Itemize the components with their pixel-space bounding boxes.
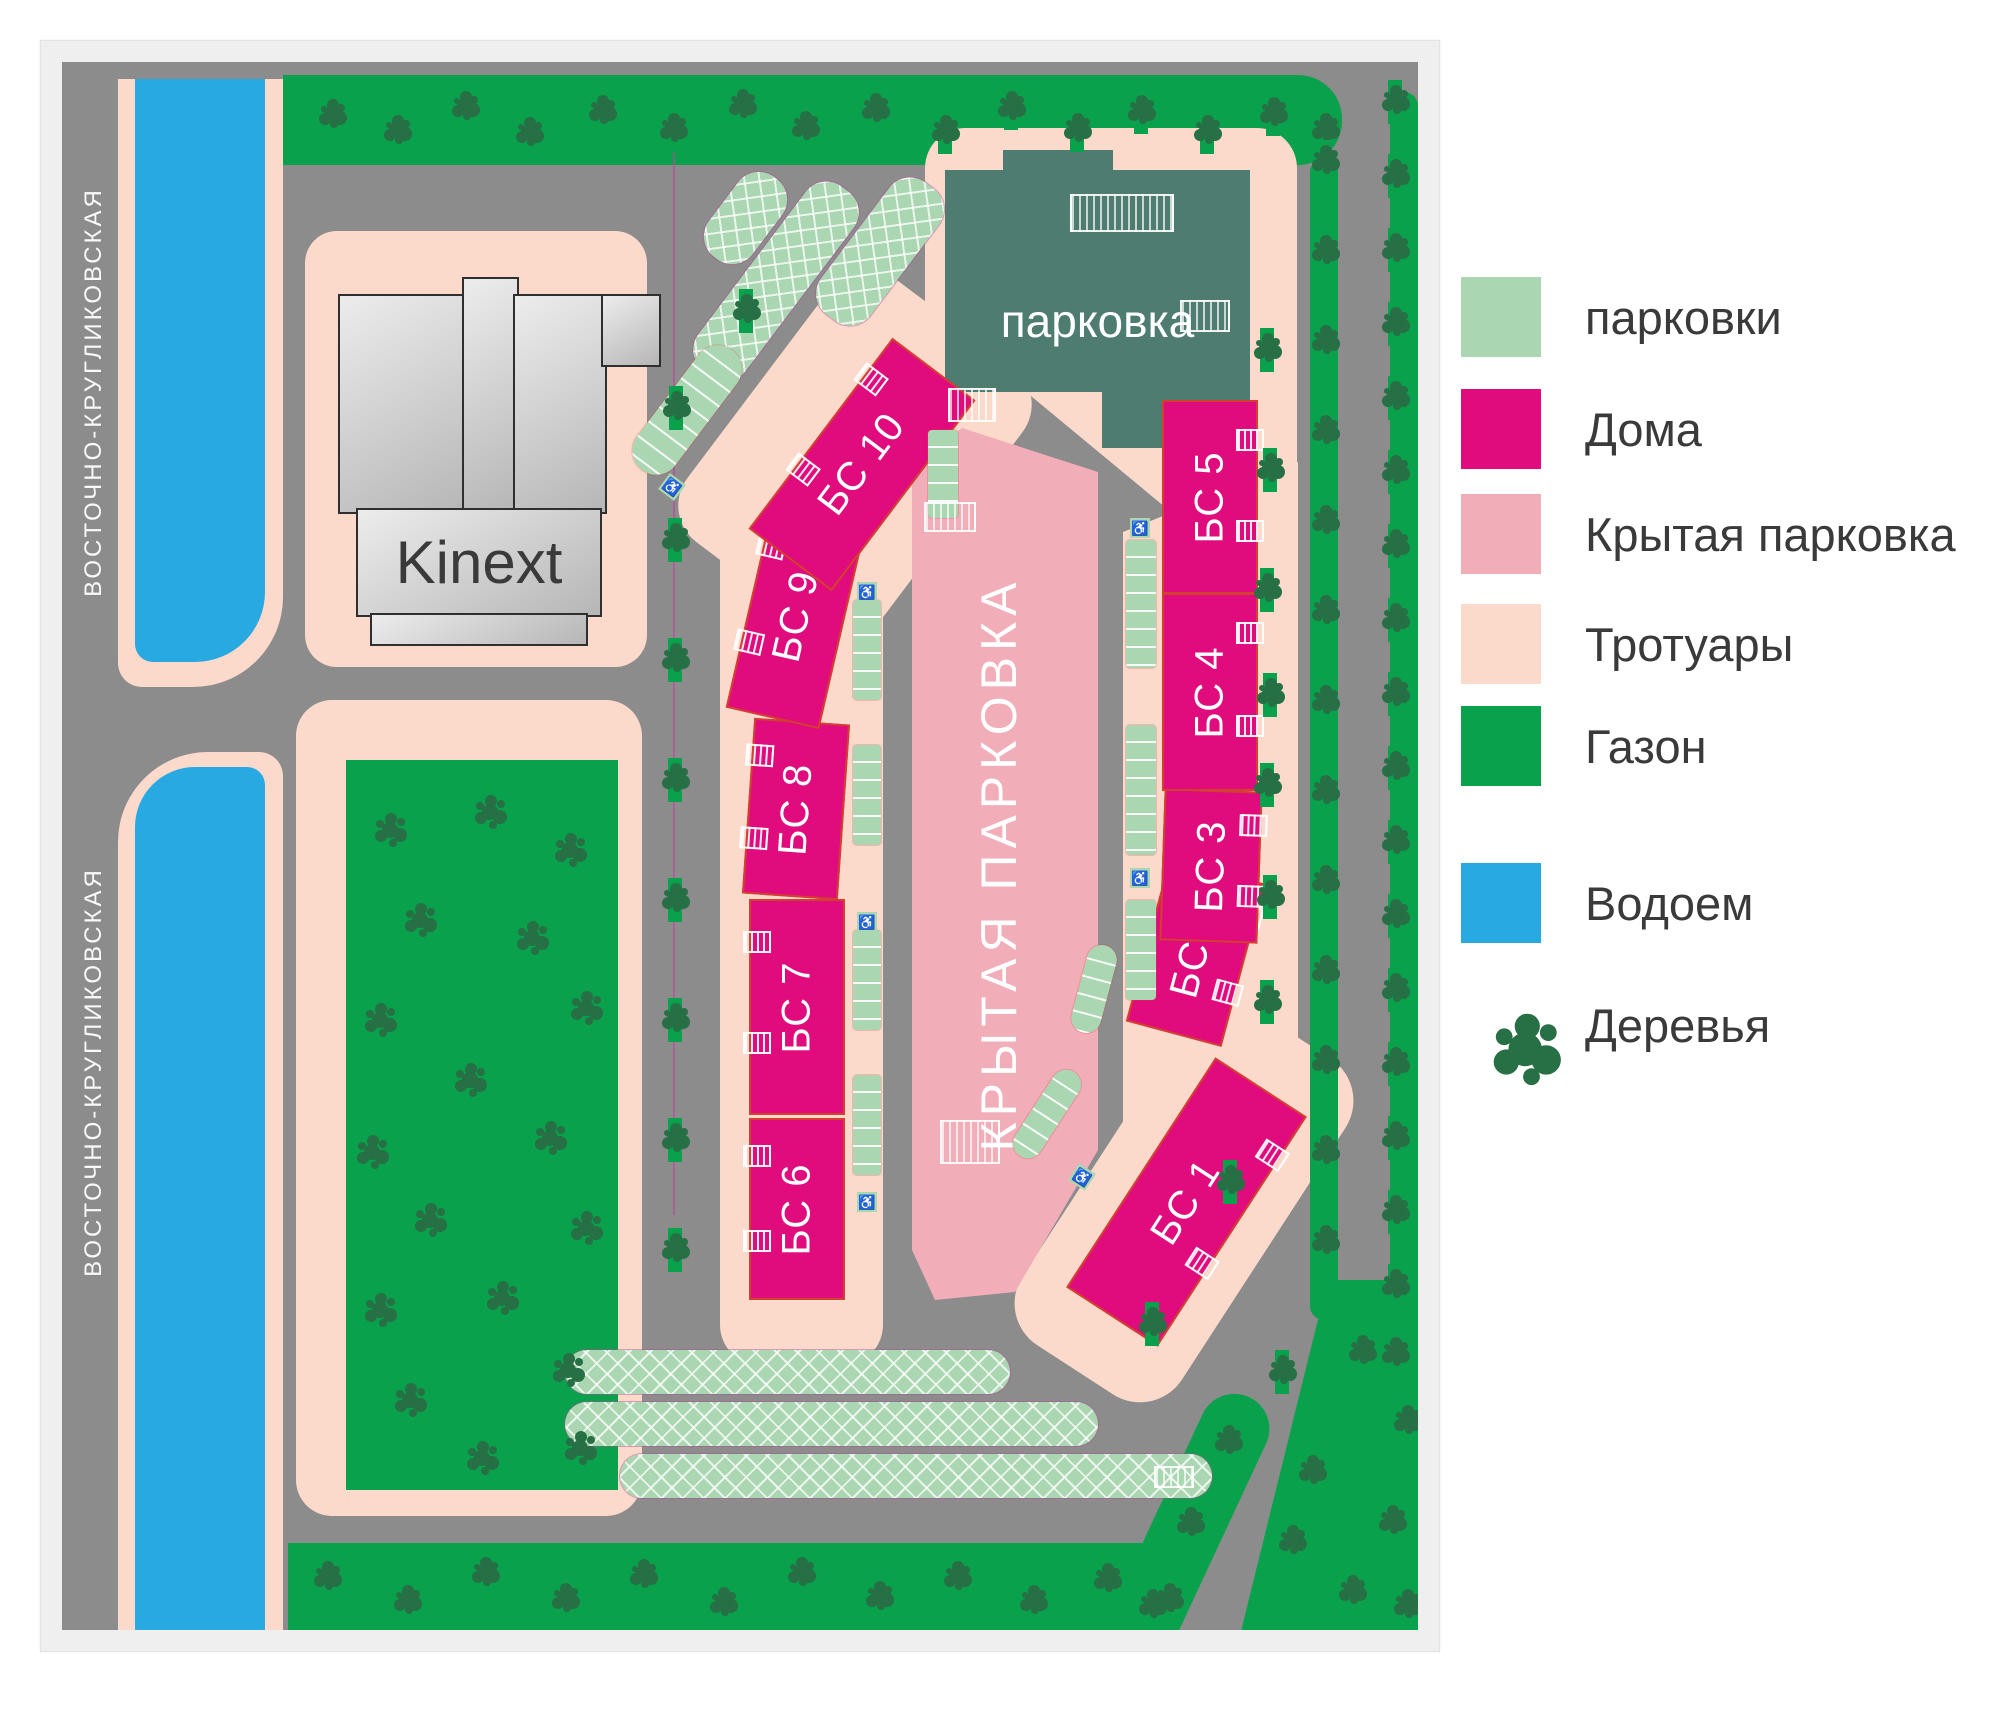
tree-crown xyxy=(1387,610,1403,626)
tree-icon xyxy=(1380,300,1410,348)
legend-item-parking: парковки xyxy=(1461,277,1991,357)
tree-crown xyxy=(1344,1582,1360,1598)
tree-icon xyxy=(1175,1500,1205,1548)
shrub-icon xyxy=(372,1302,388,1318)
tree-icon xyxy=(996,84,1026,132)
entrance-icon xyxy=(1255,1138,1290,1172)
entrance-icon xyxy=(785,452,821,486)
tree-crown xyxy=(1317,872,1333,888)
tree-icon xyxy=(1310,408,1340,456)
tree-icon xyxy=(1380,152,1410,200)
tree-crown xyxy=(937,122,953,138)
tree-icon xyxy=(470,1550,500,1598)
parking-strip xyxy=(565,1402,1098,1446)
legend-swatch-covered-parking xyxy=(1461,494,1541,574)
building-detail-outline xyxy=(1180,300,1230,332)
tree-icon xyxy=(1255,671,1285,719)
tree-crown xyxy=(1387,92,1403,108)
tree-crown xyxy=(1387,758,1403,774)
building-detail-outline xyxy=(1154,1466,1194,1488)
tree-crown xyxy=(557,1590,573,1606)
legend-label-sidewalks: Тротуары xyxy=(1585,604,1793,684)
tree-icon xyxy=(1392,1398,1418,1446)
tree-crown xyxy=(324,106,340,122)
shrub-icon xyxy=(422,1212,438,1228)
tree-crown xyxy=(1317,692,1333,708)
tree-crown xyxy=(1182,1514,1198,1530)
tree-crown xyxy=(1387,388,1403,404)
entrance-icon xyxy=(1236,520,1264,542)
wheelchair-icon: ♿ xyxy=(857,582,877,602)
tree-icon xyxy=(790,104,820,152)
tree-crown xyxy=(667,890,683,906)
shrub-icon xyxy=(578,1220,594,1236)
parking-strip xyxy=(620,1454,1212,1498)
tree-icon xyxy=(860,86,890,134)
building-label-bs-5: БС 5 xyxy=(1188,451,1233,543)
shrub-icon xyxy=(494,1290,510,1306)
tree-crown xyxy=(1387,906,1403,922)
tree-crown xyxy=(1399,1412,1415,1428)
tree-icon xyxy=(1310,588,1340,636)
tree-crown xyxy=(1003,98,1019,114)
tree-crown xyxy=(1220,1432,1236,1448)
tree-icon xyxy=(1392,1582,1418,1630)
tree-icon xyxy=(660,876,690,924)
tree-icon xyxy=(1215,1158,1245,1206)
parking-strip xyxy=(853,600,881,700)
building-label-bs-6: БС 6 xyxy=(775,1163,820,1255)
building-label-bs-10: БС 10 xyxy=(809,405,914,524)
tree-crown xyxy=(1387,1128,1403,1144)
legend-item-covered-parking: Крытая парковка xyxy=(1461,494,1991,574)
tree-icon xyxy=(1267,1348,1297,1396)
legend-label-trees: Деревья xyxy=(1585,985,1770,1065)
tree-crown xyxy=(1317,1052,1333,1068)
legend-label-covered-parking: Крытая парковка xyxy=(1585,494,1956,574)
tree-icon xyxy=(660,1116,690,1164)
tree-crown xyxy=(715,1594,731,1610)
legend-item-trees: Деревья xyxy=(1461,985,1991,1065)
entrance-icon xyxy=(743,931,771,953)
legend-item-lawn: Газон xyxy=(1461,706,1991,786)
tree-crown xyxy=(1317,1232,1333,1248)
tree-crown xyxy=(1387,980,1403,996)
legend-item-water: Водоем xyxy=(1461,863,1991,943)
tree-crown xyxy=(793,1564,809,1580)
building-detail-outline xyxy=(948,388,996,422)
tree-crown xyxy=(667,770,683,786)
shrub-icon xyxy=(402,1392,418,1408)
tree-crown xyxy=(1317,782,1333,798)
tree-crown xyxy=(1317,512,1333,528)
tree-icon xyxy=(1310,1218,1340,1266)
tree-icon xyxy=(1380,596,1410,644)
shrub-icon xyxy=(578,1000,594,1016)
tree-crown xyxy=(738,301,754,317)
tree-crown xyxy=(1259,340,1275,356)
legend-label-water: Водоем xyxy=(1585,863,1753,943)
tree-crown xyxy=(1387,684,1403,700)
tree-crown xyxy=(1222,1172,1238,1188)
tree-crown xyxy=(1387,1344,1403,1360)
tree-crown xyxy=(1025,1592,1041,1608)
tree-crown xyxy=(1317,120,1333,136)
building-bs-6: БС 6 xyxy=(749,1118,845,1300)
shrub-icon xyxy=(372,1012,388,1028)
tree-crown xyxy=(635,1566,651,1582)
tree-icon xyxy=(1310,138,1340,186)
generated-layer: БС 1БС 2БС 3БС 4БС 5БС 6БС 7БС 8БС 9БС 1… xyxy=(62,62,1418,1630)
tree-crown xyxy=(1284,1532,1300,1548)
tree-icon xyxy=(1380,1262,1410,1310)
tree-icon xyxy=(1137,1300,1167,1348)
tree-icon xyxy=(708,1580,738,1628)
tree-icon xyxy=(1380,226,1410,274)
entrance-icon xyxy=(743,1032,771,1054)
tree-crown xyxy=(667,650,683,666)
entrance-icon xyxy=(1184,1247,1219,1281)
tree-icon xyxy=(942,1554,972,1602)
shrub-icon xyxy=(572,1440,588,1456)
tree-icon xyxy=(727,82,757,130)
legend-item-houses: Дома xyxy=(1461,389,1991,469)
tree-crown xyxy=(949,1568,965,1584)
tree-crown xyxy=(389,122,405,138)
shrub-icon xyxy=(474,1450,490,1466)
tree-icon xyxy=(550,1576,580,1624)
tree-icon xyxy=(660,996,690,1044)
tree-crown xyxy=(1317,332,1333,348)
tree-crown xyxy=(1317,242,1333,258)
tree-crown xyxy=(1317,422,1333,438)
tree-crown xyxy=(667,1130,683,1146)
tree-icon xyxy=(450,84,480,132)
tree-crown xyxy=(399,1592,415,1608)
tree-icon xyxy=(1380,1330,1410,1378)
tree-crown xyxy=(1387,462,1403,478)
tree-icon xyxy=(1258,90,1288,138)
entrance-icon xyxy=(1211,979,1244,1007)
building-label-bs-7: БС 7 xyxy=(775,961,820,1053)
tree-icon xyxy=(1062,106,1092,154)
tree-icon xyxy=(1310,498,1340,546)
parking-strip xyxy=(1068,942,1120,1037)
tree-crown xyxy=(667,1010,683,1026)
tree-icon xyxy=(1126,88,1156,136)
tree-crown xyxy=(665,120,681,136)
tree-icon xyxy=(1380,744,1410,792)
entrance-icon xyxy=(853,362,889,396)
shrub-icon xyxy=(542,1130,558,1146)
tree-crown xyxy=(319,1568,335,1584)
tree-icon xyxy=(1310,1128,1340,1176)
tree-icon xyxy=(1310,768,1340,816)
tree-crown xyxy=(1387,1202,1403,1218)
building-bs-3: БС 3 xyxy=(1159,788,1262,943)
tree-icon xyxy=(1252,326,1282,374)
tree-crown xyxy=(477,1564,493,1580)
entrance-icon xyxy=(745,743,774,767)
tree-icon xyxy=(660,756,690,804)
tree-icon xyxy=(786,1550,816,1598)
tree-crown xyxy=(1144,1314,1160,1330)
tree-crown xyxy=(1262,460,1278,476)
parking-strip xyxy=(1126,725,1156,855)
tree-icon xyxy=(392,1578,422,1626)
tree-crown xyxy=(1317,602,1333,618)
shrub-icon xyxy=(382,822,398,838)
building-bs-7: БС 7 xyxy=(749,899,845,1115)
tree-icon xyxy=(1252,978,1282,1026)
building-label-bs-8: БС 8 xyxy=(770,762,821,857)
tree-icon xyxy=(1277,1518,1307,1566)
tree-icon xyxy=(1380,1040,1410,1088)
site-plan-panel: ВОСТОЧНО-КРУГЛИКОВСКАЯ ВОСТОЧНО-КРУГЛИКО… xyxy=(40,40,1440,1652)
building-label-bs-4: БС 4 xyxy=(1188,646,1233,738)
tree-crown xyxy=(1259,992,1275,1008)
tree-crown xyxy=(1304,1462,1320,1478)
tree-crown xyxy=(1387,832,1403,848)
tree-crown xyxy=(667,530,683,546)
tree-icon xyxy=(1380,374,1410,422)
tree-crown xyxy=(668,398,684,414)
tree-icon xyxy=(1380,522,1410,570)
tree-icon xyxy=(1310,1038,1340,1086)
tree-icon xyxy=(660,516,690,564)
shrub-icon xyxy=(560,1362,576,1378)
tree-crown xyxy=(1387,166,1403,182)
legend-swatch-sidewalks xyxy=(1461,604,1541,684)
tree-icon xyxy=(1252,566,1282,614)
tree-icon xyxy=(382,108,412,156)
legend-item-sidewalks: Тротуары xyxy=(1461,604,1991,684)
tree-icon xyxy=(1380,892,1410,940)
tree-crown xyxy=(867,100,883,116)
tree-icon xyxy=(1380,670,1410,718)
shrub-icon xyxy=(524,930,540,946)
wheelchair-icon: ♿ xyxy=(1068,1163,1096,1191)
tree-icon xyxy=(1310,858,1340,906)
building-detail-outline xyxy=(1070,194,1174,232)
tree-icon xyxy=(514,110,544,158)
legend-label-parking: парковки xyxy=(1585,277,1782,357)
tree-icon xyxy=(1310,678,1340,726)
tree-crown xyxy=(521,124,537,140)
tree-icon xyxy=(1347,1328,1377,1376)
tree-icon xyxy=(864,1574,894,1622)
tree-icon xyxy=(1337,1568,1367,1616)
tree-icon xyxy=(1380,448,1410,496)
entrance-icon xyxy=(733,628,765,656)
tree-icon xyxy=(1255,446,1285,494)
tree-icon xyxy=(1380,1188,1410,1236)
tree-icon xyxy=(1380,1114,1410,1162)
shrub-icon xyxy=(562,842,578,858)
parking-strip xyxy=(853,745,881,845)
tree-crown xyxy=(1199,122,1215,138)
tree-crown xyxy=(1354,1342,1370,1358)
tree-icon xyxy=(587,88,617,136)
tree-crown xyxy=(871,1588,887,1604)
tree-crown xyxy=(1099,1570,1115,1586)
tree-crown xyxy=(1399,1596,1415,1612)
legend: парковкиДомаКрытая парковкаТротуарыГазон… xyxy=(1461,0,1991,1729)
wheelchair-icon: ♿ xyxy=(658,473,686,501)
site-plan-map: ВОСТОЧНО-КРУГЛИКОВСКАЯ ВОСТОЧНО-КРУГЛИКО… xyxy=(62,62,1418,1630)
site-plan-page: ВОСТОЧНО-КРУГЛИКОВСКАЯ ВОСТОЧНО-КРУГЛИКО… xyxy=(0,0,2000,1729)
tree-crown xyxy=(1265,104,1281,120)
shrub-icon xyxy=(462,1072,478,1088)
tree-icon xyxy=(628,1552,658,1600)
tree-crown xyxy=(667,1240,683,1256)
tree-icon xyxy=(731,287,761,335)
tree-crown xyxy=(1317,962,1333,978)
entrance-icon xyxy=(1239,814,1268,837)
tree-crown xyxy=(1317,152,1333,168)
tree-crown xyxy=(1069,120,1085,136)
tree-icon xyxy=(1380,818,1410,866)
tree-crown xyxy=(1144,1596,1160,1612)
tree-crown xyxy=(797,118,813,134)
tree-icon xyxy=(1213,1418,1243,1466)
tree-icon xyxy=(1377,1498,1407,1546)
tree-crown xyxy=(1508,1033,1542,1067)
parking-strip xyxy=(1007,1064,1087,1164)
entrance-icon xyxy=(743,1145,771,1167)
parking-strip xyxy=(853,930,881,1030)
tree-icon xyxy=(1310,228,1340,276)
tree-crown xyxy=(734,96,750,112)
shrub-icon xyxy=(412,912,428,928)
tree-crown xyxy=(1133,102,1149,118)
tree-icon xyxy=(660,1226,690,1274)
tree-crown xyxy=(1259,580,1275,596)
tree-crown xyxy=(594,102,610,118)
tree-icon xyxy=(1192,108,1222,156)
tree-icon xyxy=(1018,1578,1048,1626)
building-bs-5: БС 5 xyxy=(1162,400,1258,594)
tree-crown xyxy=(1387,240,1403,256)
building-bs-8: БС 8 xyxy=(742,718,850,900)
tree-icon xyxy=(312,1554,342,1602)
tree-icon xyxy=(1380,78,1410,126)
legend-swatch-lawn xyxy=(1461,706,1541,786)
tree-icon xyxy=(930,108,960,156)
parking-strip xyxy=(565,1350,1010,1394)
tree-icon xyxy=(1255,873,1285,921)
shrub-icon xyxy=(364,1144,380,1160)
wheelchair-icon: ♿ xyxy=(1130,868,1150,888)
parking-strip xyxy=(1126,900,1156,1000)
building-bs-4: БС 4 xyxy=(1162,593,1258,791)
building-bs-1: БС 1 xyxy=(1066,1057,1307,1346)
tree-crown xyxy=(1274,1362,1290,1378)
tree-crown xyxy=(1387,1054,1403,1070)
tree-crown xyxy=(1387,536,1403,552)
legend-swatch-houses xyxy=(1461,389,1541,469)
legend-swatch-water xyxy=(1461,863,1541,943)
wheelchair-icon: ♿ xyxy=(1130,518,1150,538)
building-detail-outline xyxy=(940,1120,1000,1164)
parking-strip xyxy=(1126,540,1156,668)
tree-crown xyxy=(1387,1276,1403,1292)
tree-crown xyxy=(1384,1512,1400,1528)
tree-icon xyxy=(1380,966,1410,1014)
legend-label-lawn: Газон xyxy=(1585,706,1707,786)
wheelchair-icon: ♿ xyxy=(857,912,877,932)
tree-crown xyxy=(1259,775,1275,791)
tree-icon xyxy=(1137,1582,1167,1630)
tree-icon xyxy=(1310,948,1340,996)
parking-strip xyxy=(853,1075,881,1175)
shrub-icon xyxy=(482,804,498,820)
entrance-icon xyxy=(1236,622,1264,644)
entrance-icon xyxy=(739,826,768,850)
legend-swatch-parking xyxy=(1461,277,1541,357)
tree-icon xyxy=(1310,318,1340,366)
building-detail-outline xyxy=(924,502,976,532)
entrance-icon xyxy=(743,1230,771,1252)
tree-crown xyxy=(1262,887,1278,903)
building-label-bs-3: БС 3 xyxy=(1187,819,1235,913)
tree-crown xyxy=(457,98,473,114)
tree-icon xyxy=(661,384,691,432)
tree-crown xyxy=(1387,314,1403,330)
tree-icon xyxy=(317,92,347,140)
tree-icon xyxy=(1297,1448,1327,1496)
tree-icon xyxy=(1092,1556,1122,1604)
tree-crown xyxy=(1262,685,1278,701)
tree-icon xyxy=(1252,761,1282,809)
legend-label-houses: Дома xyxy=(1585,389,1702,469)
tree-crown xyxy=(1317,1142,1333,1158)
tree-icon xyxy=(658,106,688,154)
wheelchair-icon: ♿ xyxy=(857,1192,877,1212)
tree-icon xyxy=(660,636,690,684)
